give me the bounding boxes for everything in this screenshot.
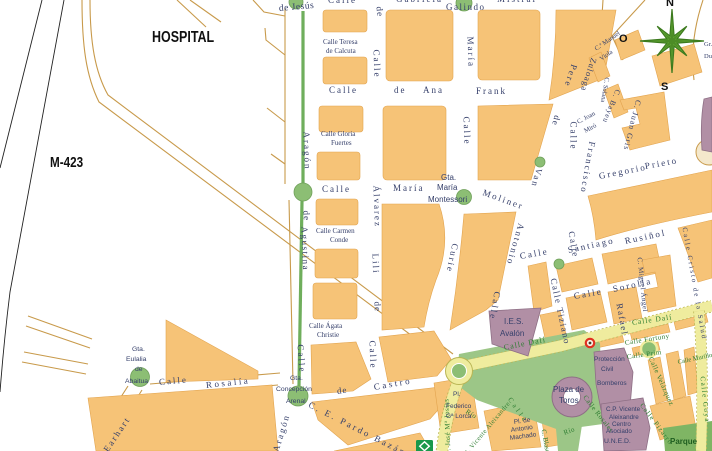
lbl-agata-1: Calle Ágata <box>309 323 342 330</box>
lbl-anafrank-frank: Frank <box>476 87 507 96</box>
lbl-gta-montessori-2: María <box>437 184 457 192</box>
lbl-aragon-n: Aragón <box>302 131 312 170</box>
lbl-zuloaga: Zuloaga <box>579 57 598 93</box>
lbl-joanmiro-2: Miró <box>583 123 598 135</box>
lbl-rusinol-calle: Calle <box>519 247 549 261</box>
hospital-label: HOSPITAL <box>152 30 214 46</box>
lbl-gta-eulalia-1: Gta. <box>132 347 145 354</box>
lbl-francisco-calle: Calle <box>569 122 578 151</box>
lbl-gabriela: Gabriela <box>396 0 443 4</box>
lbl-uned-4: Asociado <box>606 429 632 435</box>
lbl-lili-de: de <box>373 301 382 312</box>
lbl-agata-2: Christie <box>317 332 339 339</box>
lbl-federico-2: Federico <box>446 404 471 411</box>
lbl-tiziano: Calle Tiziano <box>549 278 572 346</box>
lbl-federico-3: Gª Lorca <box>446 414 472 421</box>
m423-road-label: M-423 <box>50 155 83 170</box>
lbl-fortuny: Calle Fortuny <box>624 333 670 347</box>
lbl-prieto: Prieto <box>644 156 679 171</box>
lbl-parque: Parque <box>670 438 697 446</box>
lbl-galindo: Galindo <box>446 3 486 12</box>
lbl-gta-eulalia-3: de <box>135 367 143 374</box>
lbl-machado-3: Machado <box>510 432 537 442</box>
lbl-moliner-calle: Calle <box>322 185 351 194</box>
lbl-bomberos: Bomberos <box>597 381 627 388</box>
lbl-gta-concepcion-3: Arenal <box>286 399 306 406</box>
lbl-pardobazan: C. E. Pardo Bazán <box>307 400 408 451</box>
lbl-federico-1: Pl. <box>453 392 461 399</box>
lbl-lili-calle-n: Calle <box>372 49 382 78</box>
lbl-rafael: Rafael <box>615 303 630 337</box>
lbl-vdp-calle: Calle <box>488 291 502 321</box>
lbl-earhart: Amelia Earhart <box>78 415 132 451</box>
lbl-curie: Curie <box>444 243 459 274</box>
lbl-gta-concepcion-1: Gta. <box>290 376 303 383</box>
lbl-rosalia-calle: Calle <box>159 375 189 386</box>
lbl-alvarez: Álvarez <box>372 185 382 228</box>
lbl-murillo: Calle Murillo <box>677 353 712 367</box>
lbl-toros-2: Toros <box>559 397 579 405</box>
lbl-vdp-van: Van <box>529 167 543 189</box>
lbl-gabriela-de: de <box>375 6 385 17</box>
lbl-goya: Calle Goya <box>699 376 711 423</box>
lbl-gabriela-calle: Calle <box>328 0 357 5</box>
lbl-uned-5: U.N.E.D. <box>604 439 631 446</box>
lbl-carmen-1: Calle Carmen <box>316 228 355 235</box>
lbl-rio-2: Río <box>563 426 576 437</box>
lbl-proteccion-1: Protección <box>594 357 625 364</box>
lbl-gr-frag: Gr. <box>704 42 712 49</box>
lbl-ies-2: Avalón <box>500 330 524 338</box>
lbl-gregorio: Gregorio <box>598 163 647 181</box>
lbl-curie-calle: Calle <box>462 116 472 145</box>
lbl-moliner: Moliner <box>481 188 524 211</box>
lbl-gta-montessori-3: Montessori <box>428 196 467 204</box>
lbl-vdp-pere: Pere <box>562 63 578 89</box>
lbl-anafrank-ana: Ana <box>423 86 444 95</box>
lbl-anafrank-de: de <box>394 86 407 95</box>
lbl-pizarro: Calle Pizarro <box>638 402 674 446</box>
lbl-teresa-2: de Calcuta <box>326 48 356 55</box>
lbl-prim: Calle Prim <box>627 349 663 361</box>
lbl-dali-1: Calle Dalí <box>503 336 546 352</box>
lbl-moliner-maria: María <box>393 184 425 193</box>
lbl-agustina: Agustina <box>300 226 311 271</box>
lbl-gloria-1: Calle Gloria <box>321 131 355 138</box>
lbl-sorolla-calle: Calle <box>573 287 603 301</box>
lbl-aragon-de: de <box>302 210 311 221</box>
lbl-lili: Lili <box>371 253 381 274</box>
lbl-du-frag: Du <box>704 54 712 61</box>
map-labels-layer: HOSPITALM-423NOSde JesúsCalledeGabrielaG… <box>0 0 712 451</box>
lbl-gta-montessori-1: Gta. <box>441 174 456 182</box>
lbl-de-jesus: de Jesús <box>279 2 315 15</box>
lbl-dali-2: Calle Dalí <box>631 313 672 326</box>
lbl-mistral: Mistral <box>497 0 537 4</box>
lbl-gta-eulalia-4: Abaitua <box>125 379 148 386</box>
lbl-decastro: Castro <box>373 376 412 392</box>
lbl-aragon-s-calle: Calle <box>296 344 307 374</box>
street-map: HOSPITALM-423NOSde JesúsCalledeGabrielaG… <box>0 0 712 451</box>
lbl-ies-1: I.E.S. <box>504 318 524 326</box>
lbl-viola-2: Viola <box>599 50 614 63</box>
lbl-lili-calle-s: Calle <box>368 340 378 369</box>
lbl-gta-eulalia-2: Eulalia <box>126 357 146 364</box>
lbl-cristosalud: Calle Cristo de la Salud <box>681 227 708 341</box>
lbl-teresa-1: Calle Teresa <box>323 39 358 46</box>
lbl-miguelangel: C. Miguel Ángel <box>636 257 649 312</box>
lbl-solana: C. Solana <box>598 77 609 103</box>
lbl-carmen-2: Conde <box>330 237 348 244</box>
lbl-decastro-de: de <box>336 386 348 396</box>
lbl-juangris: C. Juan Gris <box>622 99 642 151</box>
lbl-anafrank-calle: Calle <box>329 86 358 95</box>
lbl-blasco: C. Blasco <box>540 429 552 451</box>
lbl-gloria-2: Fuertes <box>331 140 352 147</box>
lbl-curie-maria-n: María <box>466 36 476 68</box>
lbl-francisco: Francisco <box>578 141 596 195</box>
compass-n: N <box>666 0 674 9</box>
lbl-vdp-de: de <box>550 114 561 126</box>
lbl-toros-1: Plaza de <box>553 386 584 394</box>
lbl-gta-concepcion-2: Concepción <box>276 387 312 394</box>
lbl-proteccion-2: Civil <box>601 367 613 374</box>
lbl-rosalia: Rosalía <box>206 376 251 390</box>
lbl-aragon-s: Aragón <box>272 413 292 451</box>
lbl-rusinol: Rusiñol <box>624 228 667 246</box>
lbl-uned-1: C.P. Vicente <box>606 407 640 413</box>
compass-s: S <box>661 82 668 93</box>
lbl-velazquez: Calle Velázquez <box>647 356 675 407</box>
